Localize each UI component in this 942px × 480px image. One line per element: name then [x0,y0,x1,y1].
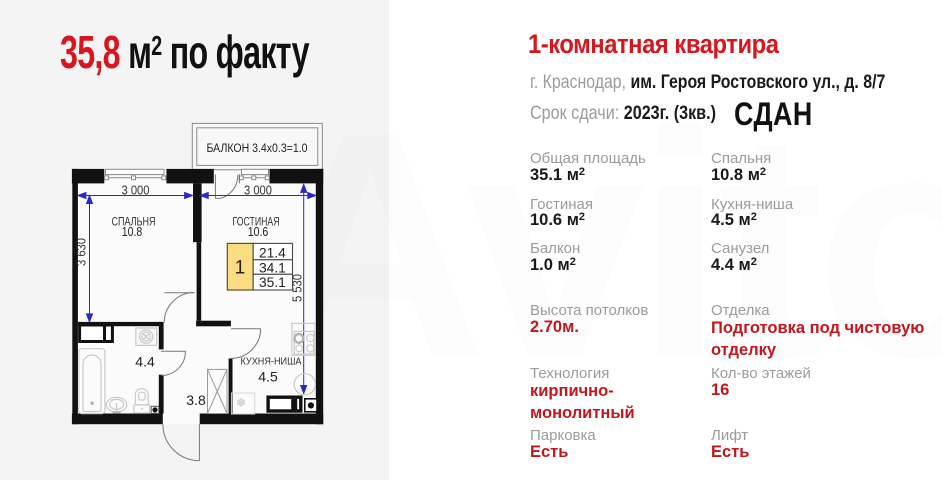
svg-text:3 000: 3 000 [244,184,272,198]
svg-text:БАЛКОН 3.4х0.3=1.0: БАЛКОН 3.4х0.3=1.0 [207,143,308,155]
svg-text:1: 1 [235,258,246,279]
svg-text:3 630: 3 630 [75,238,89,266]
svg-text:3 000: 3 000 [122,184,150,198]
svg-text:10.8: 10.8 [122,225,143,239]
svg-text:35.1: 35.1 [259,275,286,290]
svg-text:4.5: 4.5 [258,369,278,385]
svg-text:34.1: 34.1 [259,260,286,275]
svg-text:4.4: 4.4 [135,354,155,370]
svg-text:КУХНЯ-НИША: КУХНЯ-НИША [241,357,302,368]
svg-text:21.4: 21.4 [259,245,286,260]
svg-text:10.6: 10.6 [248,225,269,239]
svg-text:3.8: 3.8 [186,392,206,408]
